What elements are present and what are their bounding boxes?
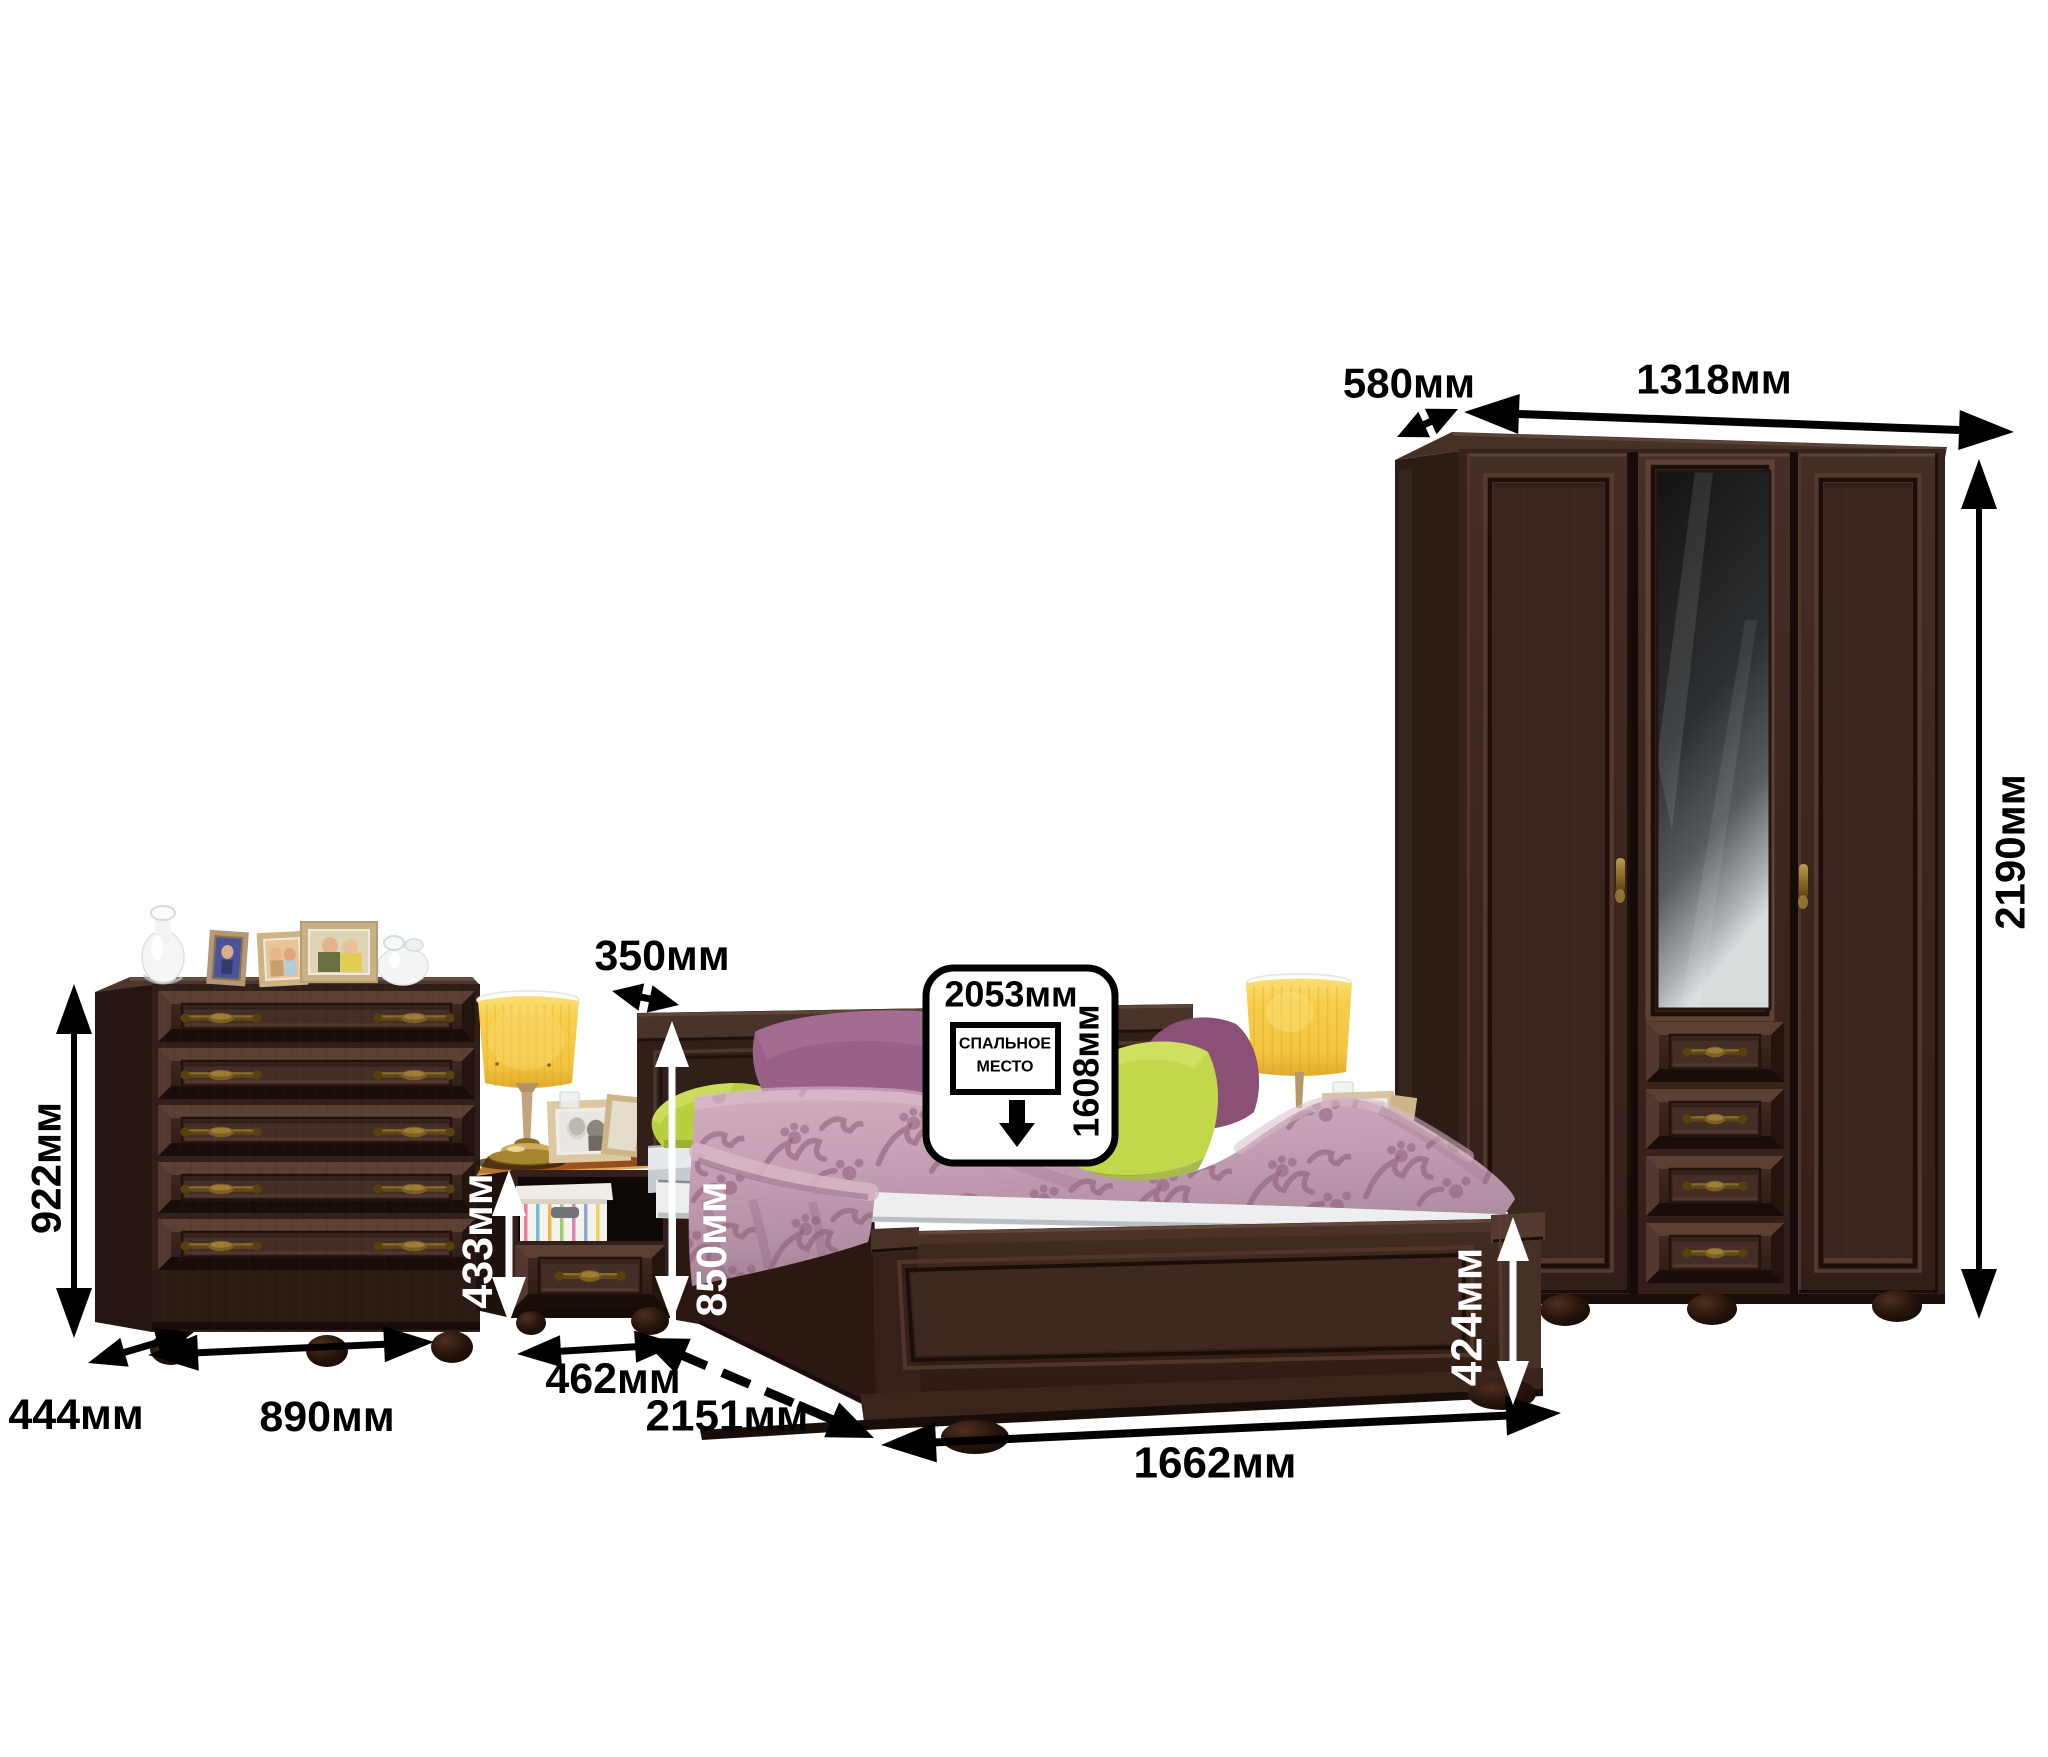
svg-text:2151мм: 2151мм [646,1392,809,1441]
svg-text:922мм: 922мм [23,1102,70,1234]
svg-text:МЕСТО: МЕСТО [977,1059,1034,1076]
svg-text:433мм: 433мм [454,1173,502,1308]
svg-text:СПАЛЬНОЕ: СПАЛЬНОЕ [959,1036,1052,1053]
svg-text:1318мм: 1318мм [1636,356,1792,403]
svg-text:1662мм: 1662мм [1134,1439,1297,1488]
svg-text:424мм: 424мм [1443,1248,1492,1387]
svg-text:580мм: 580мм [1343,360,1475,407]
svg-text:2190мм: 2190мм [1987,774,2034,930]
svg-text:850мм: 850мм [688,1181,736,1316]
svg-text:444мм: 444мм [8,1391,143,1439]
svg-text:1608мм: 1608мм [1066,1004,1107,1137]
svg-text:2053мм: 2053мм [944,974,1077,1015]
svg-text:890мм: 890мм [259,1393,394,1441]
svg-text:350мм: 350мм [594,932,729,980]
